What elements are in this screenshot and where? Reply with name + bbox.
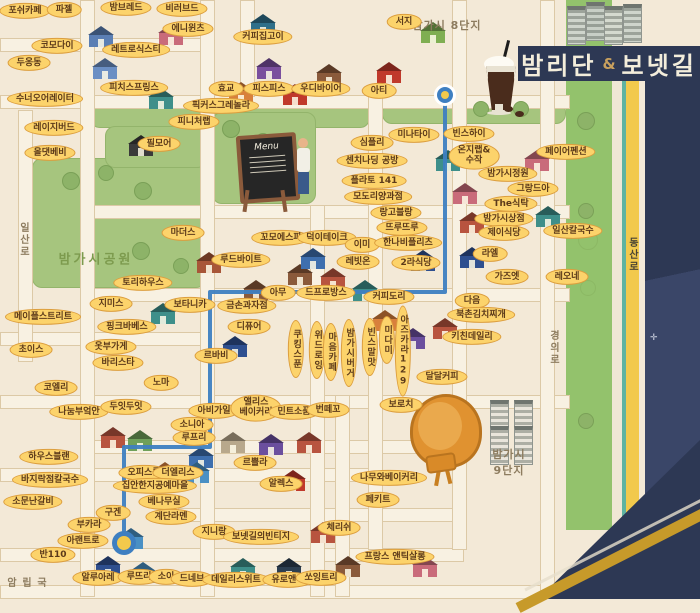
shop-label: 모도리양과점 [344, 189, 412, 205]
shop-label: 플라토 141 [342, 173, 407, 189]
house-roof [188, 447, 214, 456]
apartment-icon [604, 6, 623, 45]
bonnet-ribbon [425, 452, 457, 474]
house-body [259, 443, 283, 455]
house-icon [256, 58, 282, 79]
apartment-icon [586, 2, 605, 41]
house-roof [100, 427, 126, 436]
shop-label: 체리쉬 [318, 520, 361, 536]
house-roof [296, 432, 322, 441]
road-yellow [626, 81, 639, 530]
tree-icon [98, 165, 114, 181]
shop-label: 포쉬카페 [0, 3, 51, 19]
shop-label: 아랜트로 [57, 533, 108, 549]
shop-label: 서지 [387, 14, 422, 30]
shop-label: 온지랩& 수작 [449, 143, 500, 170]
menu-board-text: Menu [240, 140, 293, 154]
sparkle-mark: ✛ [650, 333, 658, 343]
shop-label: 미나타이 [388, 127, 439, 143]
title-sub: 보넷길 [622, 46, 697, 81]
shop-label: 라엘 [473, 246, 508, 262]
house-roof [222, 336, 248, 345]
shop-label: 북촌김치찌개 [447, 307, 515, 323]
shop-label: 바지락점칼국수 [12, 472, 88, 488]
shop-label: 노마 [144, 375, 179, 391]
district-label: 밤가시공원 [59, 249, 134, 268]
house-roof [220, 432, 246, 441]
shop-label: 계단라멘 [145, 509, 196, 525]
house-body [149, 97, 173, 109]
house-roof [276, 558, 302, 567]
shop-label: 미다미 [379, 316, 395, 364]
house-roof [376, 62, 402, 71]
tree-icon [173, 258, 189, 274]
district-label: 일산로 [16, 222, 31, 258]
house-roof [256, 58, 282, 67]
shop-label: 소문난갈비 [3, 494, 62, 510]
house-icon [296, 432, 322, 453]
shop-label: 하우스블랜 [19, 449, 78, 465]
shop-label: 밤가시버거 [341, 319, 357, 387]
house-roof [92, 58, 118, 67]
shop-label: 집안한지공예마을 [113, 478, 197, 494]
coffee-bean-icon [515, 111, 524, 117]
shop-label: 키친데일리 [442, 329, 501, 345]
district-label: 국립암 [3, 575, 48, 591]
house-roof [352, 280, 378, 289]
house-icon [258, 434, 284, 455]
tree-icon [578, 203, 594, 219]
title-ampersand: & [601, 55, 616, 73]
shop-label: 초이스 [10, 342, 53, 358]
house-roof [95, 556, 121, 565]
shop-label: 코엘리 [35, 380, 78, 396]
shop-label: 이미 [345, 237, 380, 253]
house-roof [300, 248, 326, 257]
house-body [119, 537, 143, 549]
shop-label: 아즈카라129 [395, 306, 411, 397]
shop-label: 두잇두잇 [100, 399, 151, 415]
house-body [377, 71, 401, 83]
house-body [288, 273, 312, 285]
shop-label: 마음카페 [323, 323, 339, 381]
road-cream [612, 81, 622, 530]
house-roof [250, 14, 276, 23]
tree-icon [134, 182, 152, 200]
house-roof [535, 206, 561, 215]
house-roof [316, 64, 342, 73]
house-body [257, 67, 281, 79]
shop-label: 페키트 [357, 492, 400, 508]
district-label: 밤가시 8단지 [412, 17, 481, 33]
house-roof [320, 268, 346, 277]
shop-label: 아티 [362, 83, 397, 99]
shop-label: 커피집고이 [233, 29, 292, 45]
house-icon [127, 430, 153, 451]
shop-label: 효교 [209, 81, 244, 97]
tree-icon [132, 242, 150, 260]
shop-label: 쿠킹스푼 [288, 320, 304, 378]
district-label: 경의로 [546, 330, 561, 366]
house-roof [127, 430, 153, 439]
shop-label: 레트로식스티 [102, 42, 170, 58]
shop-label: 센치나딩 공방 [337, 153, 408, 169]
shop-label: 두옹동 [8, 55, 51, 71]
tree-icon [62, 172, 80, 190]
menu-board-illustration: Menu [236, 130, 316, 214]
house-icon [376, 62, 402, 83]
shop-label: 바리스타 [92, 355, 143, 371]
house-roof [230, 558, 256, 567]
shop-label: 금손과자점 [217, 298, 276, 314]
house-body [413, 565, 437, 577]
house-body [93, 67, 117, 79]
house-roof [88, 26, 114, 35]
district-label: 밤가시 9단지 [492, 446, 525, 478]
house-body [301, 257, 325, 269]
shop-label: 파젤 [47, 2, 82, 18]
shop-label: 부카라 [68, 517, 111, 533]
shop-label: 가즈엣 [486, 269, 529, 285]
shop-label: 옷부가게 [85, 339, 136, 355]
shop-label: 보넷길의빈티지 [223, 529, 299, 545]
shop-label: 심플리 [351, 135, 394, 151]
shop-label: 르바비 [195, 348, 238, 364]
shop-label: 밤가시정원 [478, 166, 537, 182]
house-body [453, 192, 477, 204]
title-main: 밤리단 [521, 46, 596, 81]
map-title-banner: 밤리단 & 보넷길 [518, 46, 700, 81]
shop-label: 커피도리 [363, 289, 414, 305]
street-vertical [540, 0, 555, 597]
house-icon [452, 183, 478, 204]
shop-label: 빈스하이 [443, 126, 494, 142]
house-icon [100, 427, 126, 448]
district-label: 동산로 [625, 237, 640, 273]
house-roof [258, 434, 284, 443]
shop-label: 레이지버드 [24, 120, 83, 136]
bamridan-bonnet-map: ✛ Menu [0, 0, 700, 599]
shop-label: 제이식당 [478, 225, 529, 241]
house-icon [300, 248, 326, 269]
apartment-icon [623, 4, 642, 43]
shop-label: 루드바이트 [211, 252, 270, 268]
house-icon [92, 58, 118, 79]
house-body [128, 439, 152, 451]
house-icon [220, 432, 246, 453]
house-body [221, 441, 245, 453]
house-body [101, 436, 125, 448]
shop-label: 메이플스트리트 [5, 309, 81, 325]
shop-label: 디퓨어 [228, 319, 271, 335]
shop-label: 뜨루뜨루 [376, 220, 427, 236]
house-roof [118, 528, 144, 537]
shop-label: 아무 [261, 285, 296, 301]
shop-label: 밤브레드 [100, 0, 151, 16]
house-icon [118, 528, 144, 549]
shop-label: 한나비플리츠 [374, 235, 442, 251]
house-roof [452, 183, 478, 192]
apartment-icon [567, 6, 586, 45]
tree-icon [577, 112, 595, 130]
house-body [151, 312, 175, 324]
shop-label: 알루아레 [72, 570, 123, 586]
shop-label: 지미스 [90, 296, 133, 312]
coffee-bean-icon [504, 106, 513, 112]
person-illustration [294, 138, 314, 208]
house-body [297, 441, 321, 453]
tree-icon [578, 413, 594, 429]
